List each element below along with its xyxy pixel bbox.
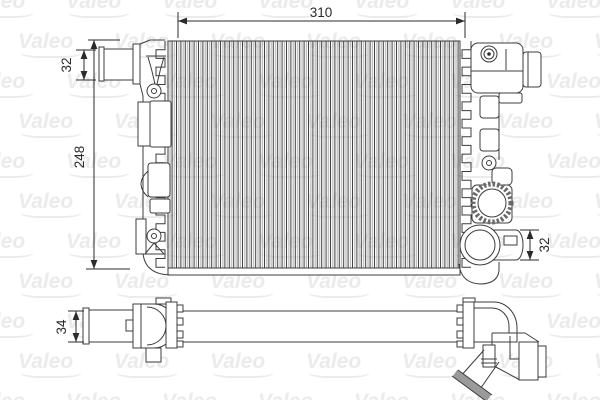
drawing-line bbox=[487, 52, 491, 56]
side-right-elbow bbox=[452, 298, 546, 400]
left-bracket-lower bbox=[136, 219, 164, 254]
radiator-catalog-image: ValeoValeoValeoValeoValeoValeoValeoValeo… bbox=[0, 0, 600, 400]
drawing-line bbox=[168, 41, 460, 268]
drawing-line bbox=[148, 163, 170, 197]
filler-neck bbox=[471, 43, 541, 103]
inlet-pipe-body bbox=[104, 49, 134, 80]
drawing-line bbox=[76, 50, 96, 80]
drawing-line bbox=[457, 331, 463, 338]
drain-plug bbox=[472, 184, 512, 223]
drawing-line bbox=[136, 219, 146, 254]
drawing-line bbox=[463, 302, 474, 348]
front-view bbox=[99, 40, 541, 284]
mount-bolt-right bbox=[482, 156, 496, 170]
core-bottom-rail bbox=[168, 268, 460, 275]
drawing-line bbox=[81, 71, 88, 80]
dim-32-inlet-label: 32 bbox=[59, 57, 74, 72]
diagonal-pipe-end bbox=[455, 373, 489, 398]
side-left-pipe bbox=[83, 304, 175, 348]
drawing-line bbox=[148, 57, 155, 84]
drawing-line bbox=[91, 260, 98, 269]
drawing-line bbox=[150, 199, 170, 213]
elbow-block bbox=[519, 342, 538, 380]
drawing-line bbox=[145, 243, 164, 254]
drawing-line bbox=[457, 318, 463, 325]
drawing-line bbox=[166, 302, 177, 348]
left-bracket-upper bbox=[138, 101, 171, 147]
drawing-line bbox=[478, 189, 506, 217]
dim-310-label: 310 bbox=[310, 5, 333, 20]
drawing-line bbox=[140, 40, 165, 44]
mount-bolt-bottom-left bbox=[147, 229, 161, 243]
side-pipe-flange bbox=[133, 304, 141, 348]
inlet-pipe-end-cap bbox=[99, 47, 104, 81]
dim-34-label: 34 bbox=[54, 319, 69, 335]
tank-pad-lower bbox=[480, 129, 499, 151]
drawing-line bbox=[178, 18, 187, 25]
drawing-line bbox=[177, 318, 183, 325]
drawing-line bbox=[73, 311, 80, 320]
drawing-line bbox=[157, 57, 164, 84]
mount-bolt-top-left bbox=[147, 84, 161, 98]
drawing-line bbox=[177, 305, 183, 312]
dim-outlet-pipe: 32 bbox=[520, 230, 552, 260]
drawing-line bbox=[538, 346, 546, 377]
dim-248-label: 248 bbox=[72, 146, 87, 169]
elbow-stub-pipe bbox=[483, 345, 495, 367]
tank-pad-upper bbox=[480, 96, 499, 118]
side-bracket-foot bbox=[146, 348, 161, 362]
drawing-line bbox=[177, 331, 183, 338]
drawing-line bbox=[460, 225, 500, 265]
dim-core-width: 310 bbox=[178, 5, 465, 38]
drawing-line bbox=[177, 341, 183, 347]
side-pipe-end-cap bbox=[83, 308, 89, 344]
left-tank bbox=[136, 40, 172, 275]
dim-side-thickness: 34 bbox=[54, 311, 84, 342]
drawing-line bbox=[527, 251, 534, 260]
left-side-bump bbox=[141, 163, 170, 213]
drawing-line bbox=[91, 40, 98, 49]
outlet-port bbox=[460, 225, 523, 265]
filler-cap bbox=[523, 52, 541, 87]
inlet-pipe bbox=[99, 44, 140, 84]
side-body bbox=[177, 311, 463, 342]
drawing-line bbox=[81, 50, 88, 59]
dim-32-outlet-label: 32 bbox=[537, 237, 552, 252]
radiator-core bbox=[156, 41, 471, 275]
drawing-line bbox=[499, 93, 522, 103]
drawing-line bbox=[457, 341, 463, 347]
side-view bbox=[83, 298, 546, 400]
drawing-line bbox=[138, 102, 151, 146]
drawing-line bbox=[456, 18, 465, 25]
drawing-line bbox=[73, 333, 80, 342]
drawing-line bbox=[457, 305, 463, 312]
drawing-line bbox=[150, 101, 171, 147]
radiator-technical-drawing: 310 32 248 32 bbox=[0, 0, 600, 400]
dim-inlet-pipe: 32 bbox=[59, 50, 96, 80]
drawing-line bbox=[471, 43, 523, 93]
drawing-line bbox=[141, 171, 148, 197]
inlet-pipe-flange bbox=[133, 44, 140, 84]
drawing-line bbox=[504, 236, 517, 245]
drawing-line bbox=[527, 230, 534, 239]
